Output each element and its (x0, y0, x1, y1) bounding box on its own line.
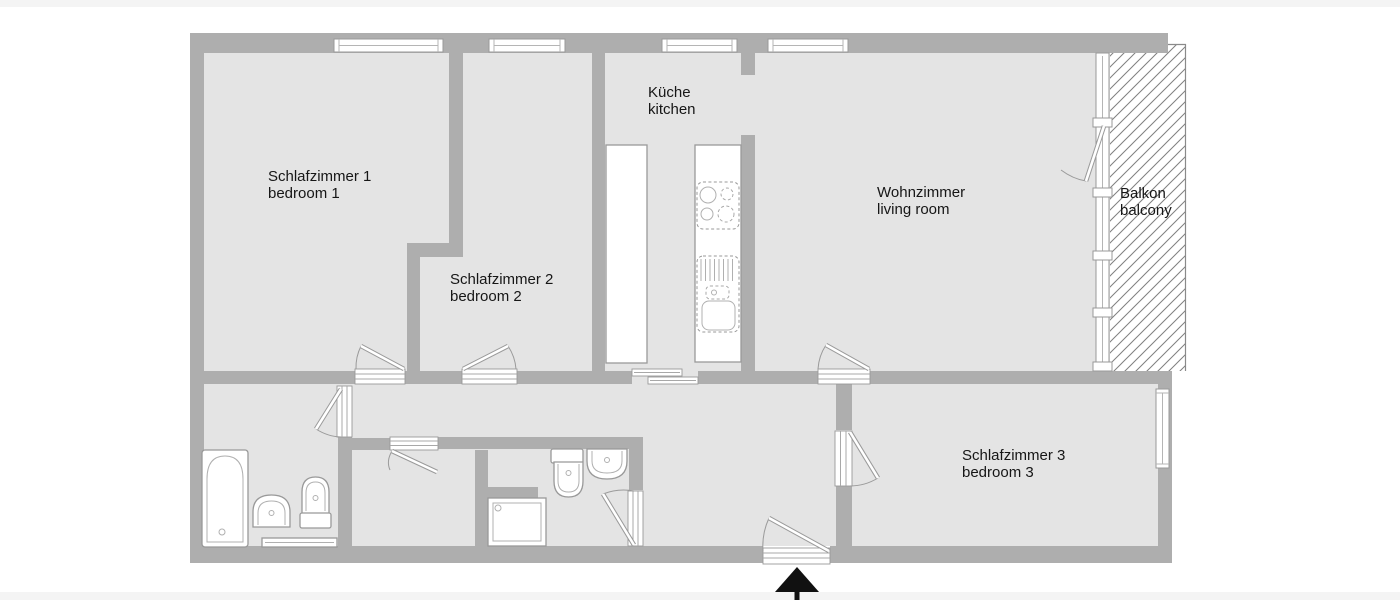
kitchen-island (695, 145, 741, 362)
room-label-en: kitchen (648, 101, 696, 118)
room-label-de: Balkon (1120, 185, 1172, 202)
window-top-3 (662, 39, 737, 52)
room-label-de: Wohnzimmer (877, 184, 965, 201)
room-label-living-room: Wohnzimmer living room (877, 184, 965, 219)
toilet (300, 477, 331, 528)
kitchen-counter (606, 145, 647, 363)
room-label-bedroom2: Schlafzimmer 2 bedroom 2 (450, 271, 553, 306)
room-label-balcony: Balkon balcony (1120, 185, 1172, 220)
floorplan-canvas (0, 0, 1400, 600)
toilet-2 (551, 449, 583, 497)
room-label-bedroom3: Schlafzimmer 3 bedroom 3 (962, 447, 1065, 482)
balcony-glazing (1093, 53, 1112, 371)
room-label-en: bedroom 2 (450, 288, 553, 305)
bottom-edge-band (0, 592, 1400, 600)
stove-hob (697, 182, 739, 229)
washbasin (253, 495, 290, 527)
floorplan-page: Schlafzimmer 1 bedroom 1 Schlafzimmer 2 … (0, 0, 1400, 600)
bathtub (202, 450, 248, 547)
room-label-en: balcony (1120, 202, 1172, 219)
window-top-1 (334, 39, 443, 52)
wall-bottom-right (830, 546, 1172, 563)
top-edge-band (0, 0, 1400, 7)
room-label-de: Küche (648, 84, 696, 101)
room-label-kitchen: Küche kitchen (648, 84, 696, 119)
window-bedroom3 (1156, 389, 1169, 468)
wall-bottom-left (190, 546, 763, 563)
window-top-4 (768, 39, 848, 52)
room-label-de: Schlafzimmer 3 (962, 447, 1065, 464)
towel-radiator (262, 538, 337, 547)
room-label-en: bedroom 1 (268, 185, 371, 202)
room-label-en: living room (877, 201, 965, 218)
window-top-2 (489, 39, 565, 52)
room-label-de: Schlafzimmer 1 (268, 168, 371, 185)
kitchen-sink (697, 256, 739, 332)
room-label-bedroom1: Schlafzimmer 1 bedroom 1 (268, 168, 371, 203)
room-label-en: bedroom 3 (962, 464, 1065, 481)
room-label-de: Schlafzimmer 2 (450, 271, 553, 288)
washbasin-2 (587, 449, 627, 479)
shower-tray (488, 498, 546, 546)
